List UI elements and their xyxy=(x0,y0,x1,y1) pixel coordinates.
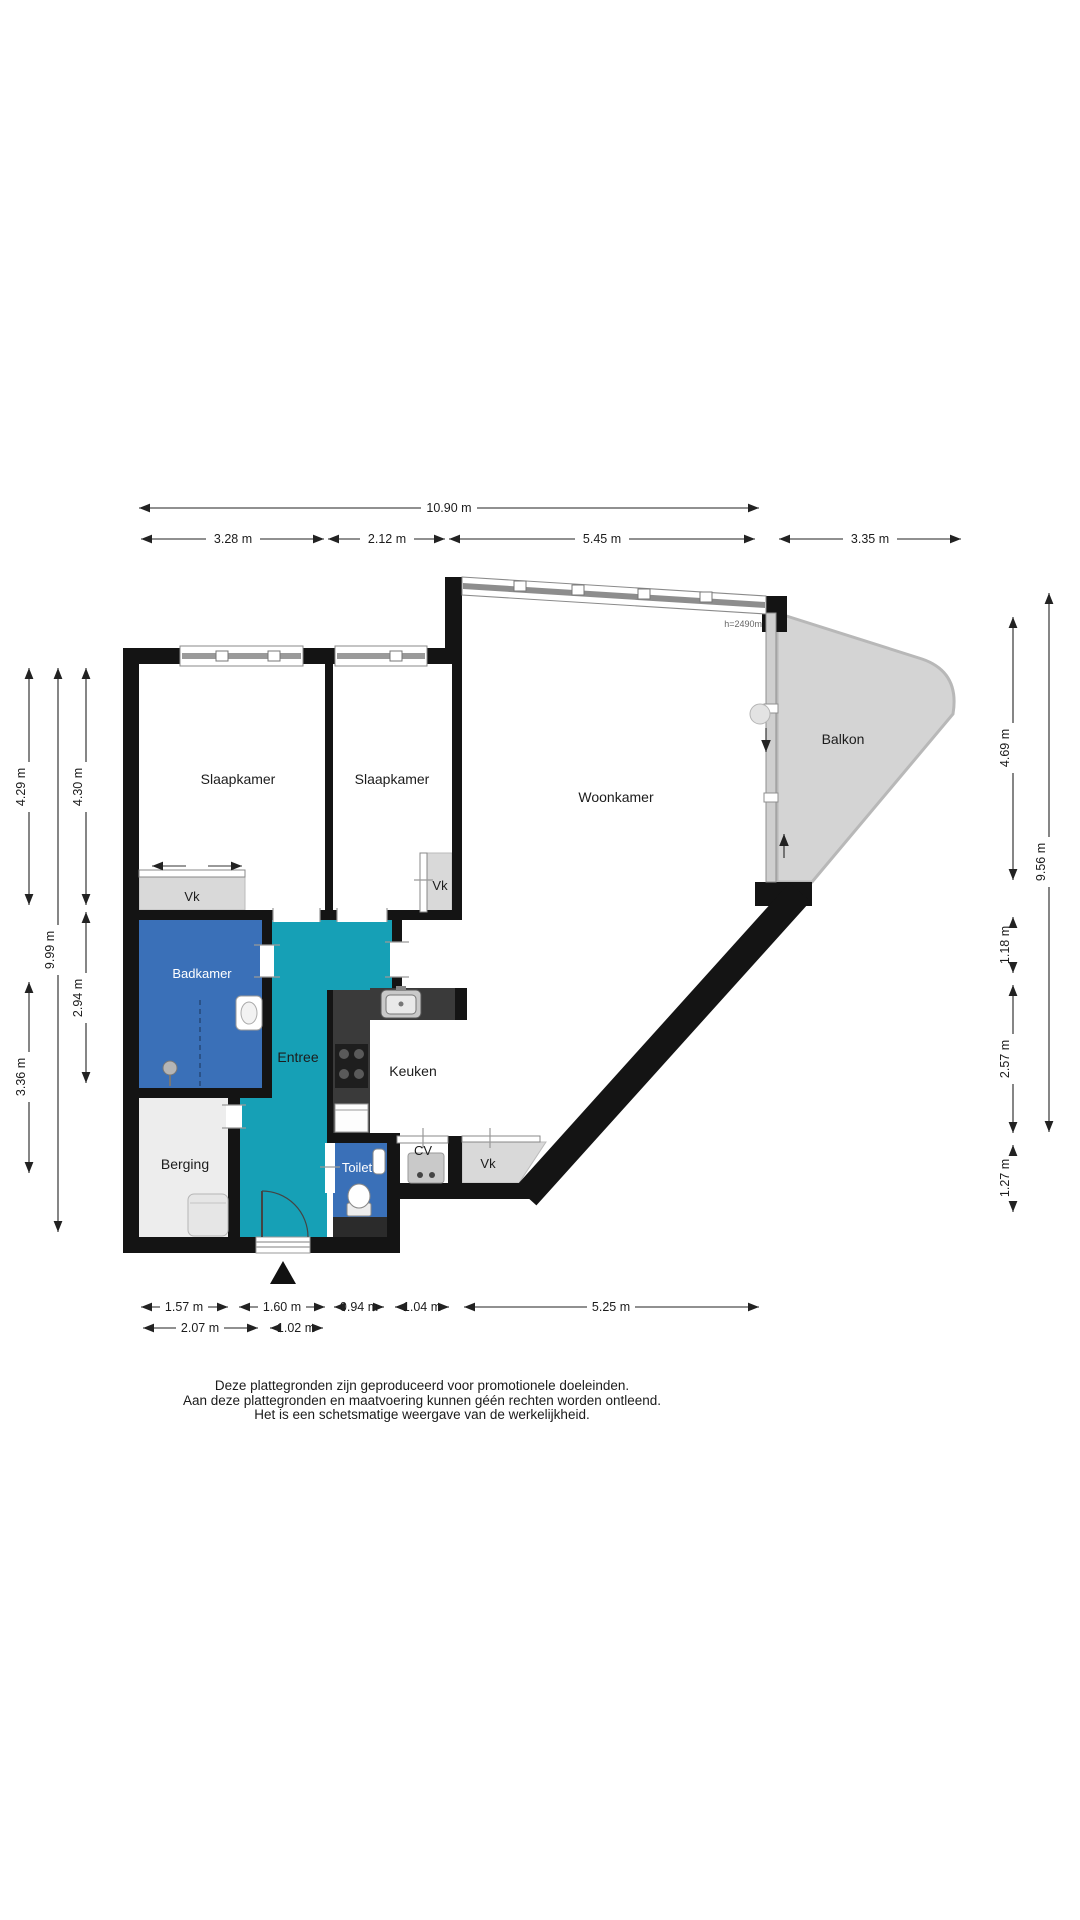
dim-bottom2-seg2: 1.02 m xyxy=(277,1321,315,1335)
wall-counter-stub xyxy=(455,988,467,1020)
floorplan-page: Slaapkamer Slaapkamer Woonkamer Balkon B… xyxy=(0,0,1080,1920)
dim-left-outer-bottom: 3.36 m xyxy=(14,1058,28,1096)
label-badkamer: Badkamer xyxy=(172,966,232,981)
vk1-door-track xyxy=(139,870,245,877)
label-vk1: Vk xyxy=(184,889,200,904)
wall-bottom-right xyxy=(400,1183,540,1199)
wall-diagonal xyxy=(526,892,800,1196)
washing-machine-icon xyxy=(188,1194,228,1236)
label-balkon: Balkon xyxy=(822,731,865,747)
dim-bottom-seg4: 1.04 m xyxy=(403,1300,441,1314)
ceiling-height-note: h=2490m xyxy=(724,619,762,629)
dim-bottom-seg2: 1.60 m xyxy=(263,1300,301,1314)
wall-entree-lower xyxy=(327,990,333,1137)
vk2-door-track xyxy=(420,853,427,912)
dim-right-total: 9.56 m xyxy=(1034,843,1048,881)
disclaimer-line-2: Aan deze plattegronden en maatvoering ku… xyxy=(72,1394,772,1409)
balkon-column xyxy=(750,704,770,724)
dishwasher-icon xyxy=(335,1104,368,1132)
dim-bottom-seg5: 5.25 m xyxy=(592,1300,630,1314)
window-slaapkamer2 xyxy=(335,646,427,666)
dim-left-inner-top: 4.30 m xyxy=(71,768,85,806)
room-fills xyxy=(139,613,954,1237)
vk3-door-track xyxy=(462,1136,540,1142)
dim-right-seg3: 2.57 m xyxy=(998,1040,1012,1078)
window-slaapkamer1 xyxy=(180,646,303,666)
label-toilet: Toilet xyxy=(342,1160,373,1175)
balkon-floor xyxy=(777,613,954,882)
dim-left-outer-top: 4.29 m xyxy=(14,768,28,806)
dim-right-seg2: 1.18 m xyxy=(998,926,1012,964)
label-slaapkamer2: Slaapkamer xyxy=(355,771,430,787)
dim-left-total: 9.99 m xyxy=(43,931,57,969)
label-berging: Berging xyxy=(161,1156,209,1172)
disclaimer: Deze plattegronden zijn geproduceerd voo… xyxy=(72,1379,772,1423)
wall-toilet-right xyxy=(387,1143,400,1237)
dim-top-seg2: 2.12 m xyxy=(368,532,406,546)
label-vk2: Vk xyxy=(432,878,448,893)
label-vk3: Vk xyxy=(480,1156,496,1171)
label-keuken: Keuken xyxy=(389,1063,436,1079)
toilet-basin-icon xyxy=(373,1149,385,1174)
wall-step-top xyxy=(445,577,462,664)
floorplan-drawing: Slaapkamer Slaapkamer Woonkamer Balkon B… xyxy=(0,0,1080,1920)
label-cv: CV xyxy=(414,1143,432,1158)
entrance-triangle-icon xyxy=(270,1261,296,1284)
wall-sk2-right xyxy=(452,664,462,920)
wall-cv-right xyxy=(448,1136,462,1183)
dim-right-balkon: 4.69 m xyxy=(998,729,1012,767)
wall-badkamer-bottom xyxy=(123,1088,272,1098)
disclaimer-line-1: Deze plattegronden zijn geproduceerd voo… xyxy=(72,1379,772,1394)
dim-top-total: 10.90 m xyxy=(426,501,471,515)
label-slaapkamer1: Slaapkamer xyxy=(201,771,276,787)
dim-left-inner-bottom: 2.94 m xyxy=(71,979,85,1017)
dim-top-seg3: 5.45 m xyxy=(583,532,621,546)
front-door-threshold xyxy=(256,1237,310,1253)
dim-bottom-seg1: 1.57 m xyxy=(165,1300,203,1314)
windows xyxy=(180,577,784,882)
bathroom-sink-icon xyxy=(236,996,262,1030)
toilet-bowl-icon xyxy=(347,1184,371,1216)
dim-top-seg4: 3.35 m xyxy=(851,532,889,546)
wall-left xyxy=(123,648,139,1253)
kitchen-sink-icon xyxy=(381,986,421,1018)
wall-toilet-top xyxy=(327,1133,400,1143)
label-woonkamer: Woonkamer xyxy=(578,789,654,805)
toilet-threshold-dark xyxy=(333,1217,387,1237)
cooktop-icon xyxy=(335,1044,368,1088)
dim-bottom2-seg1: 2.07 m xyxy=(181,1321,219,1335)
dim-bottom-seg3: 0.94 m xyxy=(340,1300,378,1314)
dim-right-seg4: 1.27 m xyxy=(998,1159,1012,1197)
dim-top-seg1: 3.28 m xyxy=(214,532,252,546)
wall-bedroom-divider xyxy=(325,664,333,910)
disclaimer-line-3: Het is een schetsmatige weergave van de … xyxy=(72,1408,772,1423)
label-entree: Entree xyxy=(277,1049,318,1065)
window-woonkamer-slanted xyxy=(462,577,766,614)
